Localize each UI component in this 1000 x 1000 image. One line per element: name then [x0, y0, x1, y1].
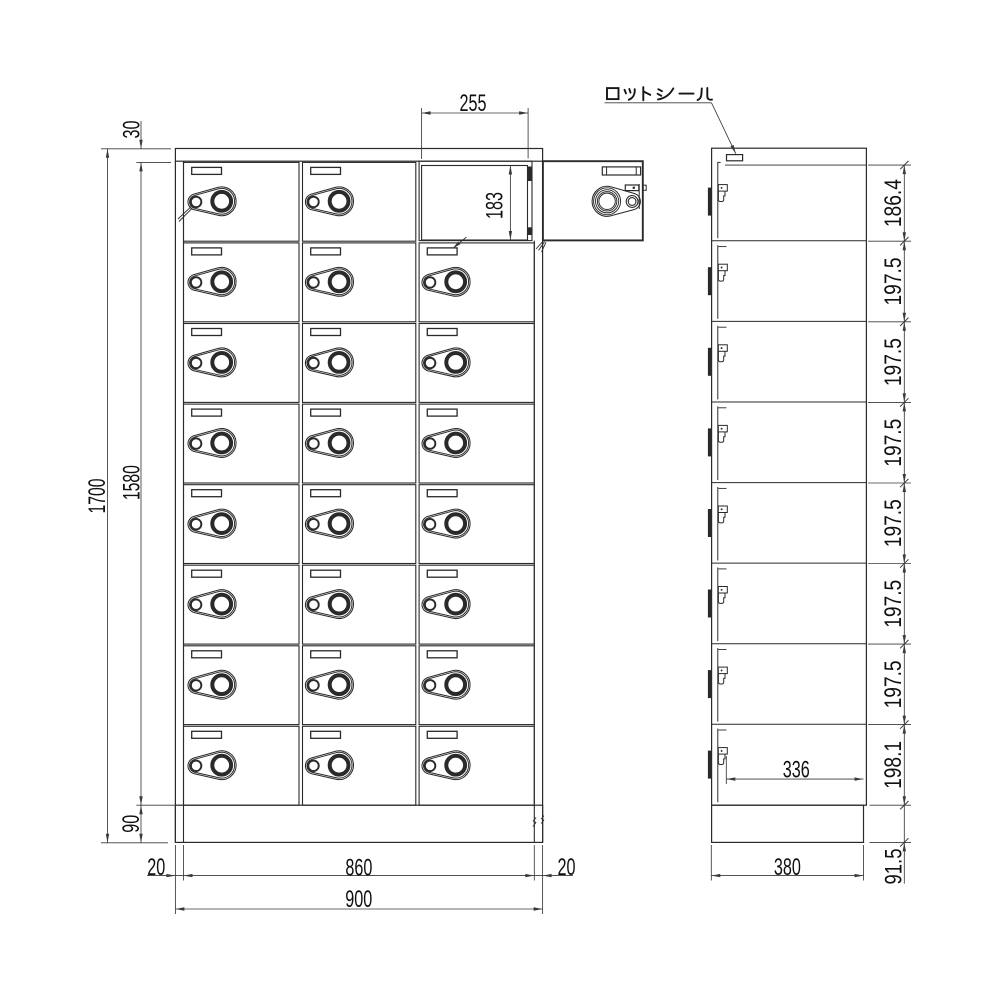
- svg-text:197.5: 197.5: [880, 499, 907, 547]
- svg-text:255: 255: [460, 90, 487, 117]
- svg-text:91.5: 91.5: [881, 849, 908, 885]
- svg-text:197.5: 197.5: [880, 258, 907, 306]
- svg-text:1700: 1700: [84, 479, 111, 514]
- svg-text:186.4: 186.4: [880, 179, 907, 227]
- svg-text:900: 900: [345, 886, 372, 913]
- svg-text:197.5: 197.5: [880, 338, 907, 386]
- svg-text:30: 30: [118, 121, 145, 139]
- svg-text:20: 20: [558, 854, 576, 881]
- svg-text:183: 183: [481, 192, 508, 219]
- svg-text:197.5: 197.5: [880, 660, 907, 708]
- svg-text:380: 380: [774, 854, 801, 881]
- svg-text:336: 336: [783, 756, 810, 783]
- svg-text:1580: 1580: [118, 465, 145, 500]
- svg-text:197.5: 197.5: [880, 419, 907, 467]
- svg-text:198.1: 198.1: [880, 741, 907, 789]
- svg-text:90: 90: [118, 815, 145, 833]
- svg-text:197.5: 197.5: [880, 580, 907, 628]
- svg-text:20: 20: [147, 854, 165, 881]
- svg-text:860: 860: [345, 855, 372, 882]
